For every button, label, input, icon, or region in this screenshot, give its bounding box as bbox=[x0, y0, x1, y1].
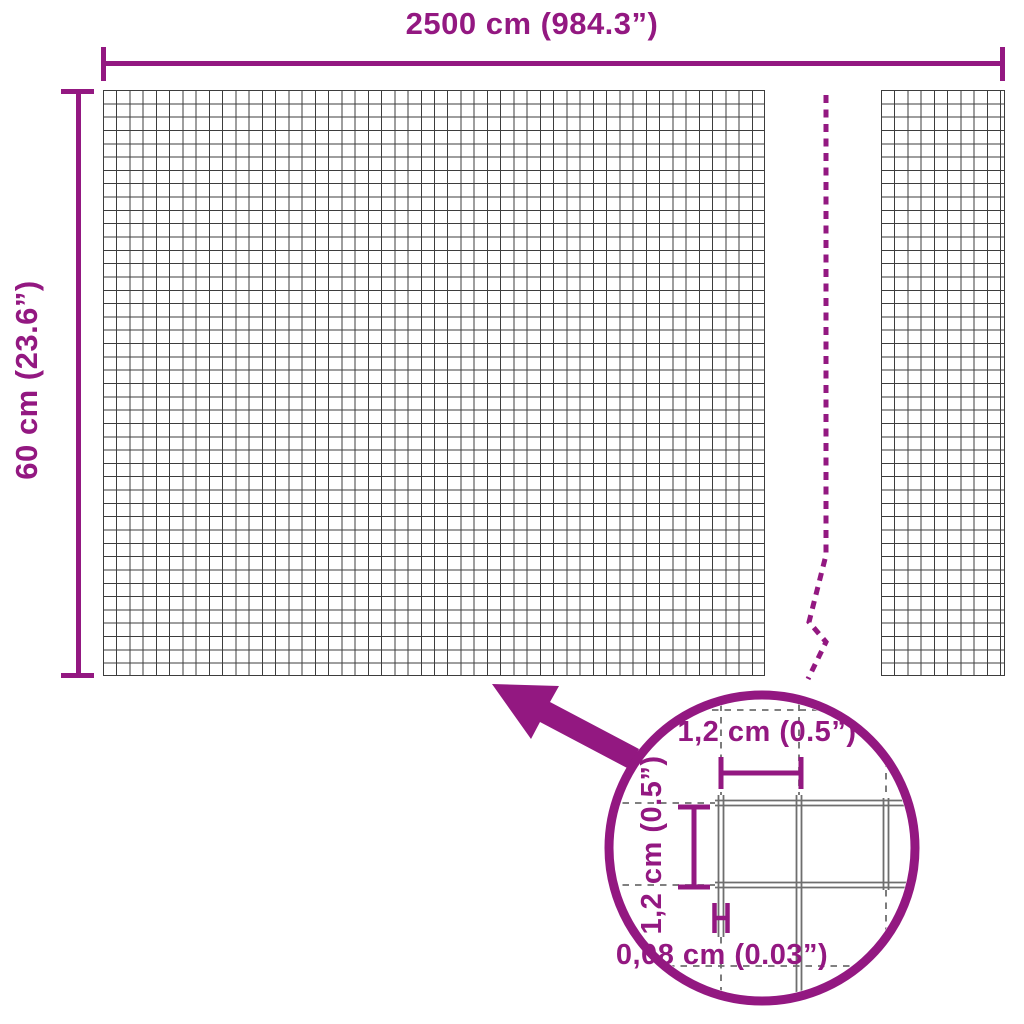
product-dimension-diagram: 2500 cm (984.3”) 60 cm (23.6”) 1,2 cm (0… bbox=[0, 0, 1024, 1024]
width-dimension-label: 2500 cm (984.3”) bbox=[332, 6, 732, 42]
diagram-linework bbox=[0, 0, 1024, 1024]
break-line-icon bbox=[808, 95, 826, 679]
width-dimension-line bbox=[103, 47, 1003, 81]
height-dimension-line bbox=[61, 91, 94, 676]
wire-thickness-label: 0,08 cm (0.03”) bbox=[552, 937, 892, 973]
height-dimension-label: 60 cm (23.6”) bbox=[9, 205, 45, 555]
